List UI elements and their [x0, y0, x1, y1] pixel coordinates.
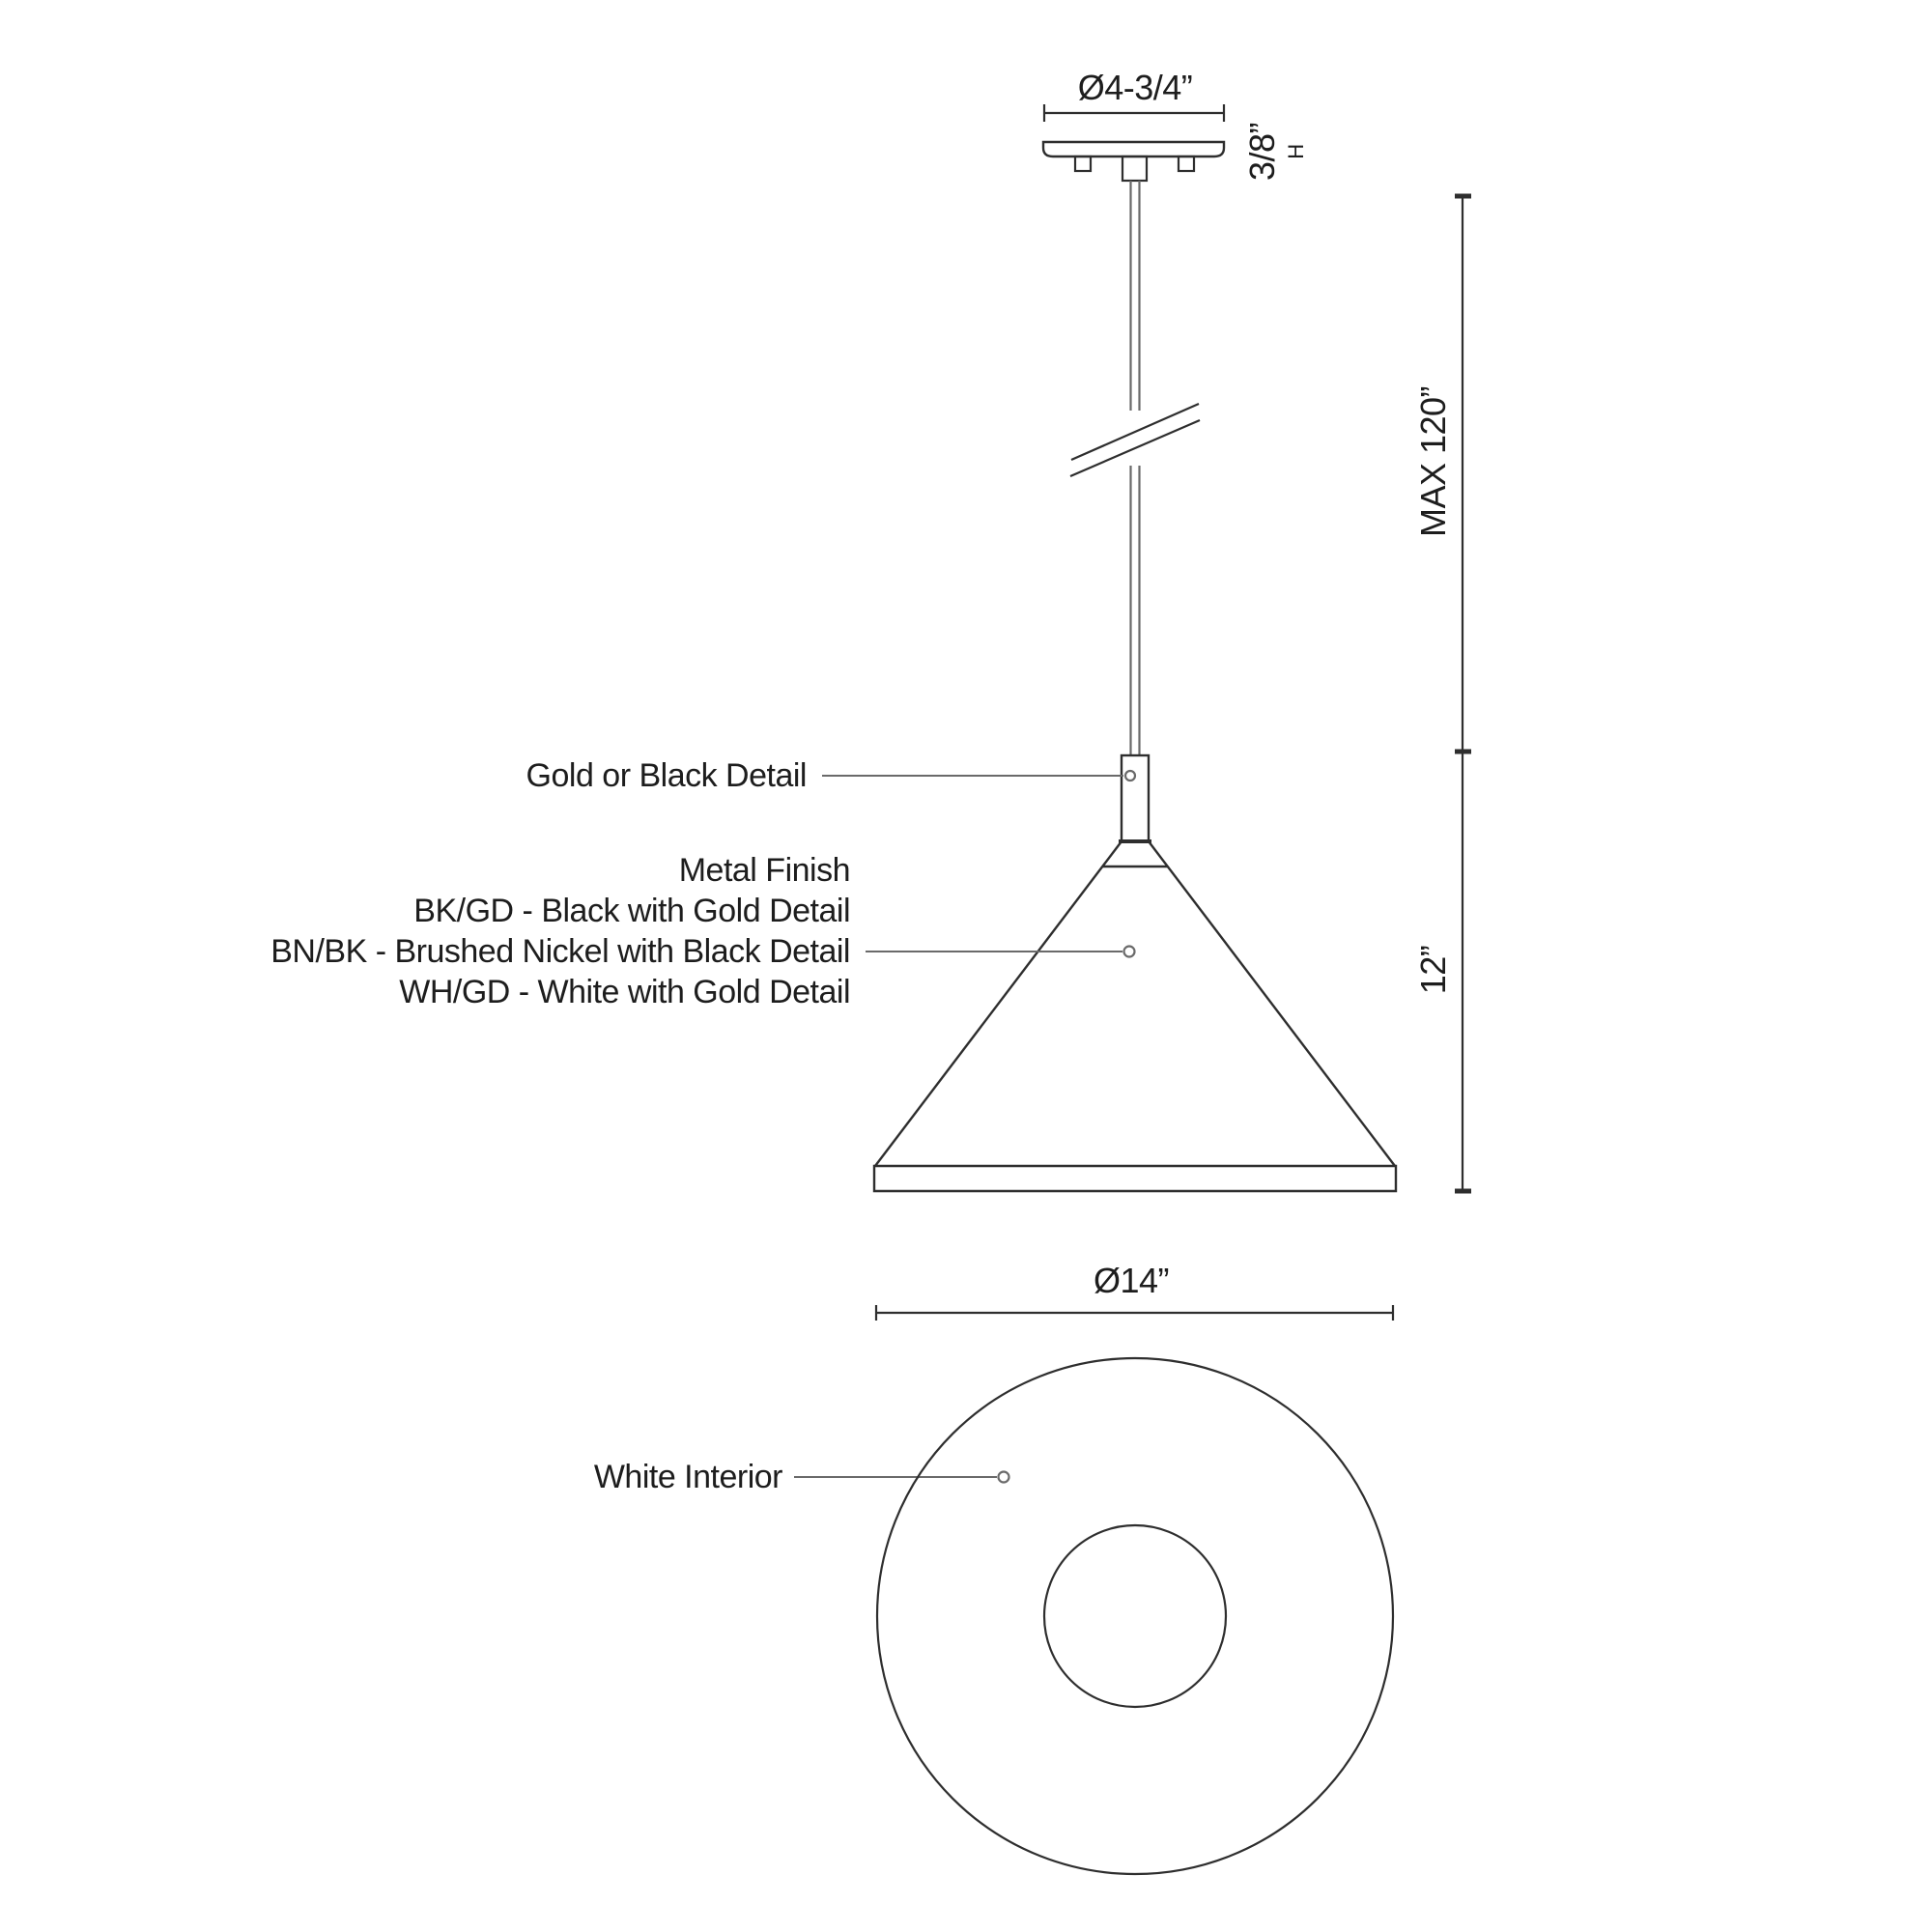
- shade-height-dimension-text: 12”: [1410, 922, 1457, 1018]
- shade-diameter-dimension: [876, 1305, 1393, 1321]
- finish-option-whgd: WH/GD - White with Gold Detail: [270, 972, 850, 1012]
- canopy-screw-right: [1179, 156, 1194, 171]
- cord-break-line-upper: [1071, 404, 1199, 460]
- spec-sheet-page: Ø4-3/4” 3/8” H MAX 120” 12” Ø14” Gold or…: [0, 0, 1932, 1932]
- bottom-view-outer-circle: [877, 1358, 1393, 1874]
- leader-interior-dot: [999, 1472, 1009, 1483]
- bottom-view-inner-circle: [1044, 1525, 1226, 1707]
- detail-callout-label: Gold or Black Detail: [526, 755, 807, 796]
- canopy-height-dimension-text: 3/8” H: [1241, 94, 1313, 210]
- canopy-stem: [1122, 156, 1147, 181]
- height-dimension: [1455, 196, 1471, 1191]
- shade-right-edge: [1149, 841, 1395, 1166]
- grip-detail-dot: [1125, 771, 1135, 781]
- cord-grip: [1122, 755, 1149, 841]
- suspension-cord: [1070, 181, 1200, 755]
- finish-option-bnbk: BN/BK - Brushed Nickel with Black Detail: [270, 931, 850, 972]
- interior-callout-label: White Interior: [594, 1457, 782, 1497]
- shade-side-view: [874, 841, 1396, 1191]
- finish-option-bkgd: BK/GD - Black with Gold Detail: [270, 891, 850, 931]
- leader-finish-dot: [1124, 947, 1135, 957]
- shade-diameter-dimension-text: Ø14”: [986, 1261, 1276, 1301]
- cord-break-line-lower: [1070, 420, 1200, 476]
- canopy-height-unit: H: [1284, 94, 1309, 210]
- shade-bottom-rim: [874, 1166, 1396, 1191]
- canopy-screw-left: [1075, 156, 1091, 171]
- finish-heading: Metal Finish: [270, 850, 850, 891]
- finish-callout-block: Metal Finish BK/GD - Black with Gold Det…: [270, 850, 850, 1012]
- canopy-height-value: 3/8”: [1241, 94, 1284, 210]
- shade-left-edge: [875, 841, 1122, 1166]
- max-height-dimension-text: MAX 120”: [1410, 380, 1457, 544]
- canopy-plate-outline: [1043, 142, 1224, 156]
- shade-bottom-view: [877, 1358, 1393, 1874]
